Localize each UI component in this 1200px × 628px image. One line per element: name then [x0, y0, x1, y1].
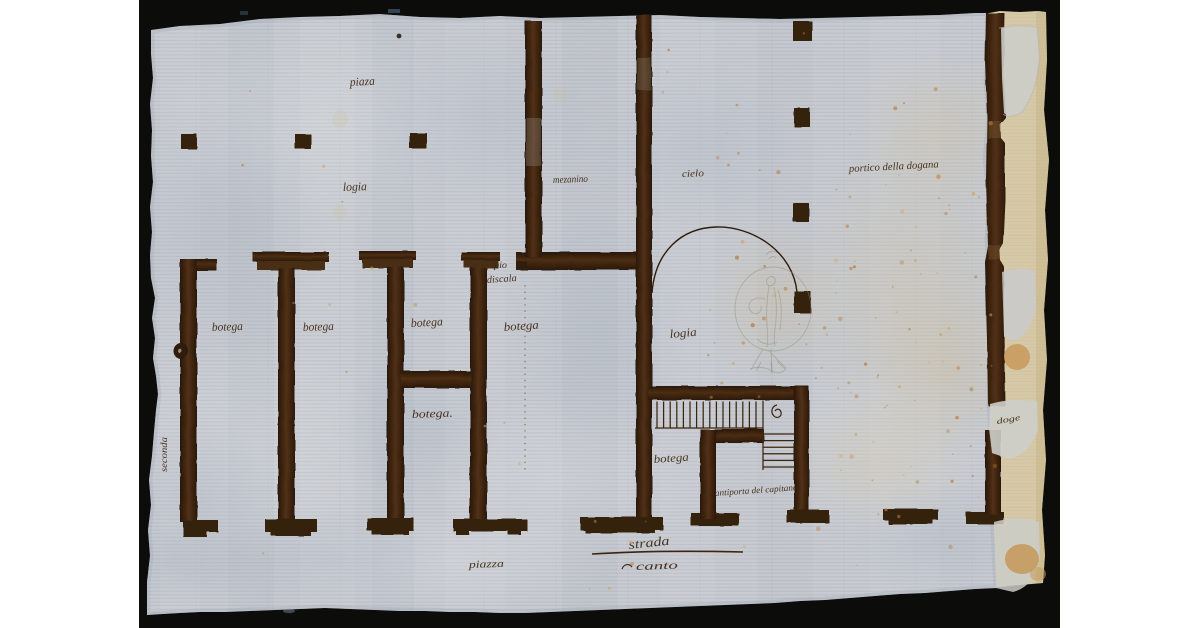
svg-text:botega: botega	[410, 314, 443, 330]
svg-text:cielo: cielo	[682, 168, 704, 180]
svg-text:discala: discala	[486, 273, 517, 286]
svg-text:botega: botega	[303, 319, 334, 334]
svg-text:botega: botega	[212, 319, 243, 334]
svg-text:seconda: seconda	[160, 437, 170, 472]
svg-text:pio: pio	[493, 261, 507, 271]
svg-text:piaza: piaza	[348, 74, 375, 89]
svg-text:canto: canto	[636, 560, 679, 573]
svg-text:mezanino: mezanino	[553, 174, 588, 186]
svg-text:botega: botega	[653, 452, 689, 466]
svg-text:logia: logia	[343, 179, 367, 194]
svg-text:logia: logia	[669, 325, 697, 341]
svg-text:piazza: piazza	[467, 559, 504, 571]
svg-text:botega.: botega.	[412, 408, 453, 421]
svg-text:botega: botega	[503, 318, 539, 334]
